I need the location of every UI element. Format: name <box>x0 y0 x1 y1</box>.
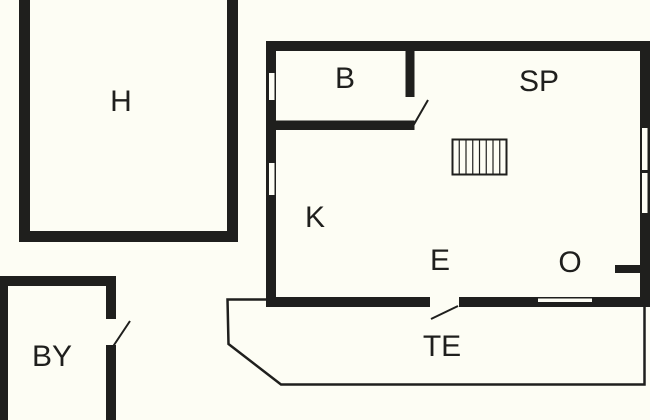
wall-o-stub <box>615 265 650 273</box>
room-label-te: TE <box>423 330 461 363</box>
room-label-b: B <box>335 62 355 95</box>
room-label-k: K <box>305 201 325 234</box>
floor-plan: H B SP K E O TE BY <box>0 0 650 420</box>
window-left-upper <box>269 73 275 100</box>
window-right-lower <box>642 173 648 213</box>
window-right-upper <box>642 128 648 170</box>
room-label-e: E <box>430 244 450 277</box>
window-bottom <box>538 299 592 303</box>
room-label-o: O <box>558 246 581 279</box>
floor-plan-canvas: H B SP K E O TE BY <box>0 0 650 420</box>
room-label-by: BY <box>32 340 72 373</box>
wall-b-right <box>406 46 415 97</box>
window-left-lower <box>269 163 275 195</box>
room-h-outline <box>25 0 233 237</box>
door-opening-entrance <box>430 296 459 308</box>
room-label-sp: SP <box>519 65 559 98</box>
wall-b-bottom <box>271 121 415 131</box>
room-label-h: H <box>110 85 132 118</box>
